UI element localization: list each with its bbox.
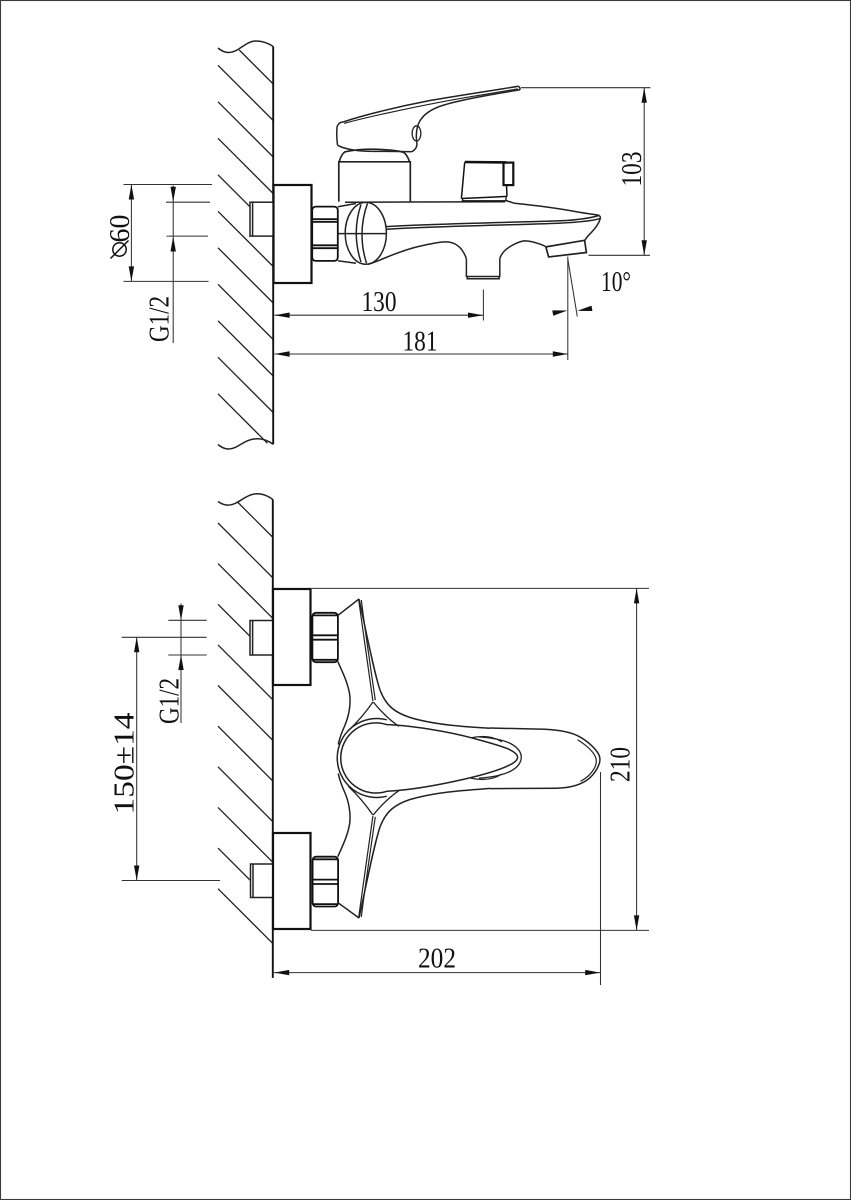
svg-text:G1/2: G1/2	[145, 296, 176, 342]
svg-text:G1/2: G1/2	[155, 678, 186, 724]
svg-text:130: 130	[362, 287, 397, 318]
svg-text:60: 60	[105, 215, 136, 243]
svg-text:10°: 10°	[601, 267, 631, 298]
svg-text:181: 181	[403, 327, 438, 358]
svg-text:150±14: 150±14	[110, 713, 141, 815]
svg-text:202: 202	[418, 944, 456, 975]
svg-text:210: 210	[606, 747, 637, 782]
svg-text:103: 103	[617, 152, 648, 187]
